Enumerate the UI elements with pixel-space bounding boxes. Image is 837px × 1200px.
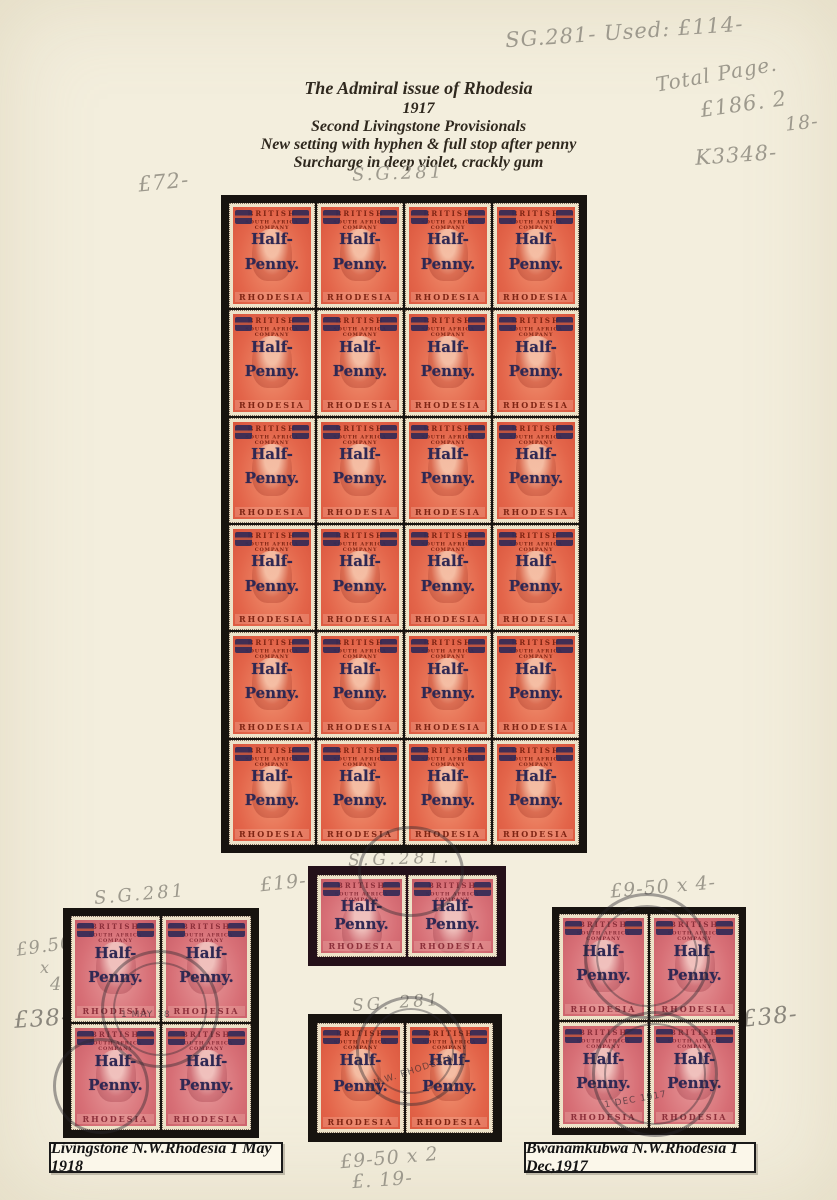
annotation-left-qty: 4 [50, 974, 62, 995]
overprint-penny: Penny. [233, 255, 311, 273]
stamp: BRITISHSOUTH AFRICA COMPANYRHODESIAHalf-… [408, 875, 497, 957]
overprint-half: Half- [497, 445, 575, 463]
value-tablet-obliterated-icon [716, 1029, 733, 1043]
overprint-half: Half- [410, 1051, 489, 1069]
overprint-half: Half- [563, 1050, 644, 1068]
overprint-half: Half- [409, 338, 487, 356]
stamp: BRITISHSOUTH AFRICA COMPANYRHODESIAHalf-… [493, 740, 579, 845]
stamp-design: BRITISHSOUTH AFRICA COMPANYRHODESIAHalf-… [409, 636, 487, 733]
stamp: BRITISHSOUTH AFRICA COMPANYRHODESIAHalf-… [493, 310, 579, 415]
caption-right: Bwanamkubwa N.W.Rhodesia 1 Dec,1917 [524, 1142, 756, 1173]
value-tablet-obliterated-icon [235, 532, 252, 546]
stamp: BRITISHSOUTH AFRICA COMPANYRHODESIAHalf-… [493, 632, 579, 737]
stamp-country-band: RHODESIA [235, 292, 309, 302]
value-tablet-obliterated-icon [556, 747, 573, 761]
stamp-design: BRITISHSOUTH AFRICA COMPANYRHODESIAHalf-… [321, 636, 399, 733]
stamp-block-left-used-4: BRITISHSOUTH AFRICA COMPANYRHODESIAHalf-… [63, 908, 259, 1138]
overprint-penny: Penny. [233, 684, 311, 702]
overprint-half: Half- [409, 230, 487, 248]
overprint-half: Half- [75, 1052, 156, 1070]
stamp-design: BRITISHSOUTH AFRICA COMPANYRHODESIAHalf-… [409, 314, 487, 411]
overprint-half: Half- [233, 338, 311, 356]
stamp-country-band: RHODESIA [499, 722, 573, 732]
stamp-country-band: RHODESIA [499, 507, 573, 517]
overprint-half: Half- [321, 660, 399, 678]
overprint-half: Half- [321, 1051, 400, 1069]
overprint-half: Half- [412, 897, 493, 915]
annotation-left-block-sg: S.G.281 [93, 880, 187, 909]
stamp-country-band: RHODESIA [565, 1004, 642, 1014]
annotation-sg-used-price: SG.281- Used: £114- [504, 12, 744, 53]
annotation-mid-bottom-sg: SG. 281 [351, 990, 441, 1016]
value-tablet-obliterated-icon [235, 747, 252, 761]
stamp-grid-main: BRITISHSOUTH AFRICA COMPANYRHODESIAHalf-… [228, 202, 580, 846]
stamp-design: BRITISHSOUTH AFRICA COMPANYRHODESIAHalf-… [654, 1026, 735, 1124]
stamp-grid-right: BRITISHSOUTH AFRICA COMPANYRHODESIAHalf-… [558, 913, 740, 1129]
stamp-design: BRITISHSOUTH AFRICA COMPANYRHODESIAHalf-… [321, 314, 399, 411]
stamp-design: BRITISHSOUTH AFRICA COMPANYRHODESIAHalf-… [321, 1027, 400, 1129]
stamp-design: BRITISHSOUTH AFRICA COMPANYRHODESIAHalf-… [409, 744, 487, 841]
overprint-penny: Penny. [410, 1077, 489, 1095]
overprint-half: Half- [497, 338, 575, 356]
overprint-half: Half- [233, 552, 311, 570]
overprint-half: Half- [166, 1052, 247, 1070]
value-tablet-obliterated-icon [168, 1031, 185, 1045]
value-tablet-obliterated-icon [323, 1030, 340, 1044]
overprint-half: Half- [233, 230, 311, 248]
stamp-design: BRITISHSOUTH AFRICA COMPANYRHODESIAHalf-… [233, 314, 311, 411]
overprint-half: Half- [321, 445, 399, 463]
stamp-country-band: RHODESIA [323, 829, 397, 839]
stamp: BRITISHSOUTH AFRICA COMPANYRHODESIAHalf-… [650, 1022, 739, 1128]
overprint-half: Half- [233, 767, 311, 785]
overprint-half: Half- [321, 767, 399, 785]
stamp-design: BRITISHSOUTH AFRICA COMPANYRHODESIAHalf-… [233, 422, 311, 519]
stamp-design: BRITISHSOUTH AFRICA COMPANYRHODESIAHalf-… [166, 1028, 247, 1126]
overprint-penny: Penny. [321, 684, 399, 702]
stamp: BRITISHSOUTH AFRICA COMPANYRHODESIAHalf-… [317, 525, 403, 630]
stamp: BRITISHSOUTH AFRICA COMPANYRHODESIAHalf-… [317, 418, 403, 523]
overprint-half: Half- [321, 230, 399, 248]
stamp-design: BRITISHSOUTH AFRICA COMPANYRHODESIAHalf-… [563, 1026, 644, 1124]
value-tablet-obliterated-icon [499, 317, 516, 331]
stamp: BRITISHSOUTH AFRICA COMPANYRHODESIAHalf-… [71, 1024, 160, 1130]
stamp: BRITISHSOUTH AFRICA COMPANYRHODESIAHalf-… [317, 1023, 404, 1133]
annotation-right-calc: £9-50 x 4- [609, 871, 717, 902]
stamp-design: BRITISHSOUTH AFRICA COMPANYRHODESIAHalf-… [409, 207, 487, 304]
overprint-penny: Penny. [321, 255, 399, 273]
value-tablet-obliterated-icon [411, 532, 428, 546]
overprint-half: Half- [321, 338, 399, 356]
overprint-penny: Penny. [654, 966, 735, 984]
overprint-half: Half- [497, 230, 575, 248]
value-tablet-obliterated-icon [411, 747, 428, 761]
value-tablet-obliterated-icon [380, 425, 397, 439]
stamp-country-band: RHODESIA [499, 614, 573, 624]
stamp-country-band: RHODESIA [323, 507, 397, 517]
caption-right-text: Bwanamkubwa N.W.Rhodesia 1 Dec,1917 [526, 1140, 754, 1176]
overprint-penny: Penny. [497, 362, 575, 380]
stamp-country-band: RHODESIA [235, 400, 309, 410]
value-tablet-obliterated-icon [499, 210, 516, 224]
value-tablet-obliterated-icon [381, 1030, 398, 1044]
stamp: BRITISHSOUTH AFRICA COMPANYRHODESIAHalf-… [317, 875, 406, 957]
stamp: BRITISHSOUTH AFRICA COMPANYRHODESIAHalf-… [229, 740, 315, 845]
annotation-main-block-sg: S.G.281 [352, 161, 445, 185]
stamp-country-band: RHODESIA [411, 614, 485, 624]
stamp-country-band: RHODESIA [414, 941, 491, 951]
stamp-country-band: RHODESIA [411, 400, 485, 410]
annotation-mid-bottom-total: £. 19- [351, 1167, 413, 1193]
stamp: BRITISHSOUTH AFRICA COMPANYRHODESIAHalf-… [493, 203, 579, 308]
stamp: BRITISHSOUTH AFRICA COMPANYRHODESIAHalf-… [405, 418, 491, 523]
stamp-country-band: RHODESIA [77, 1114, 154, 1124]
value-tablet-obliterated-icon [716, 921, 733, 935]
annotation-main-block-price: £72- [137, 167, 190, 196]
overprint-penny: Penny. [233, 791, 311, 809]
value-tablet-obliterated-icon [323, 639, 340, 653]
value-tablet-obliterated-icon [499, 747, 516, 761]
overprint-penny: Penny. [497, 469, 575, 487]
stamp-country-band: RHODESIA [235, 722, 309, 732]
stamp-design: BRITISHSOUTH AFRICA COMPANYRHODESIAHalf-… [233, 529, 311, 626]
overprint-penny: Penny. [321, 915, 402, 933]
value-tablet-obliterated-icon [228, 923, 245, 937]
stamp-country-band: RHODESIA [168, 1006, 245, 1016]
overprint-half: Half- [321, 897, 402, 915]
overprint-penny: Penny. [409, 791, 487, 809]
value-tablet-obliterated-icon [292, 639, 309, 653]
stamp-design: BRITISHSOUTH AFRICA COMPANYRHODESIAHalf-… [321, 879, 402, 953]
value-tablet-obliterated-icon [383, 882, 400, 896]
value-tablet-obliterated-icon [323, 210, 340, 224]
stamp-design: BRITISHSOUTH AFRICA COMPANYRHODESIAHalf-… [497, 636, 575, 733]
stamp-country-band: RHODESIA [499, 829, 573, 839]
value-tablet-obliterated-icon [411, 425, 428, 439]
stamp-country-band: RHODESIA [565, 1112, 642, 1122]
stamp-block-mint-24: BRITISHSOUTH AFRICA COMPANYRHODESIAHalf-… [221, 195, 587, 853]
stamp: BRITISHSOUTH AFRICA COMPANYRHODESIAHalf-… [405, 740, 491, 845]
value-tablet-obliterated-icon [292, 425, 309, 439]
stamp: BRITISHSOUTH AFRICA COMPANYRHODESIAHalf-… [229, 418, 315, 523]
stamp: BRITISHSOUTH AFRICA COMPANYRHODESIAHalf-… [162, 1024, 251, 1130]
stamp-country-band: RHODESIA [235, 829, 309, 839]
stamp-country-band: RHODESIA [323, 292, 397, 302]
overprint-half: Half- [654, 942, 735, 960]
value-tablet-obliterated-icon [468, 639, 485, 653]
stamp: BRITISHSOUTH AFRICA COMPANYRHODESIAHalf-… [71, 916, 160, 1022]
value-tablet-obliterated-icon [137, 1031, 154, 1045]
value-tablet-obliterated-icon [656, 921, 673, 935]
stamp-design: BRITISHSOUTH AFRICA COMPANYRHODESIAHalf-… [497, 314, 575, 411]
value-tablet-obliterated-icon [380, 639, 397, 653]
overprint-penny: Penny. [497, 684, 575, 702]
stamp-design: BRITISHSOUTH AFRICA COMPANYRHODESIAHalf-… [321, 744, 399, 841]
value-tablet-obliterated-icon [625, 921, 642, 935]
stamp-design: BRITISHSOUTH AFRICA COMPANYRHODESIAHalf-… [75, 920, 156, 1018]
stamp-design: BRITISHSOUTH AFRICA COMPANYRHODESIAHalf-… [75, 1028, 156, 1126]
value-tablet-obliterated-icon [556, 425, 573, 439]
stamp-country-band: RHODESIA [499, 292, 573, 302]
stamp-design: BRITISHSOUTH AFRICA COMPANYRHODESIAHalf-… [233, 744, 311, 841]
value-tablet-obliterated-icon [499, 425, 516, 439]
stamp-country-band: RHODESIA [323, 722, 397, 732]
value-tablet-obliterated-icon [468, 747, 485, 761]
stamp: BRITISHSOUTH AFRICA COMPANYRHODESIAHalf-… [650, 914, 739, 1020]
overprint-half: Half- [321, 552, 399, 570]
stamp-design: BRITISHSOUTH AFRICA COMPANYRHODESIAHalf-… [166, 920, 247, 1018]
overprint-penny: Penny. [409, 469, 487, 487]
stamp-country-band: RHODESIA [656, 1004, 733, 1014]
overprint-penny: Penny. [321, 469, 399, 487]
stamp-country-band: RHODESIA [411, 292, 485, 302]
stamp-design: BRITISHSOUTH AFRICA COMPANYRHODESIAHalf-… [410, 1027, 489, 1129]
overprint-half: Half- [409, 767, 487, 785]
value-tablet-obliterated-icon [412, 1030, 429, 1044]
overprint-penny: Penny. [75, 968, 156, 986]
overprint-penny: Penny. [409, 684, 487, 702]
value-tablet-obliterated-icon [556, 639, 573, 653]
stamp: BRITISHSOUTH AFRICA COMPANYRHODESIAHalf-… [405, 632, 491, 737]
stamp: BRITISHSOUTH AFRICA COMPANYRHODESIAHalf-… [405, 203, 491, 308]
value-tablet-obliterated-icon [380, 747, 397, 761]
overprint-penny: Penny. [75, 1076, 156, 1094]
stamp: BRITISHSOUTH AFRICA COMPANYRHODESIAHalf-… [406, 1023, 493, 1133]
stamp: BRITISHSOUTH AFRICA COMPANYRHODESIAHalf-… [405, 525, 491, 630]
stamp: BRITISHSOUTH AFRICA COMPANYRHODESIAHalf-… [229, 525, 315, 630]
annotation-left-times: x [40, 958, 50, 977]
value-tablet-obliterated-icon [565, 921, 582, 935]
overprint-penny: Penny. [497, 577, 575, 595]
stamp-country-band: RHODESIA [656, 1112, 733, 1122]
overprint-penny: Penny. [321, 1077, 400, 1095]
overprint-half: Half- [497, 767, 575, 785]
value-tablet-obliterated-icon [556, 532, 573, 546]
value-tablet-obliterated-icon [380, 317, 397, 331]
overprint-half: Half- [409, 660, 487, 678]
value-tablet-obliterated-icon [411, 639, 428, 653]
value-tablet-obliterated-icon [556, 210, 573, 224]
value-tablet-obliterated-icon [468, 210, 485, 224]
stamp-design: BRITISHSOUTH AFRICA COMPANYRHODESIAHalf-… [497, 529, 575, 626]
stamp-grid-left: BRITISHSOUTH AFRICA COMPANYRHODESIAHalf-… [70, 915, 252, 1131]
stamp-country-band: RHODESIA [235, 614, 309, 624]
value-tablet-obliterated-icon [292, 747, 309, 761]
stamp-design: BRITISHSOUTH AFRICA COMPANYRHODESIAHalf-… [409, 422, 487, 519]
stamp-design: BRITISHSOUTH AFRICA COMPANYRHODESIAHalf-… [409, 529, 487, 626]
value-tablet-obliterated-icon [292, 532, 309, 546]
stamp-design: BRITISHSOUTH AFRICA COMPANYRHODESIAHalf-… [497, 422, 575, 519]
value-tablet-obliterated-icon [380, 532, 397, 546]
overprint-penny: Penny. [409, 362, 487, 380]
stamp-country-band: RHODESIA [235, 507, 309, 517]
value-tablet-obliterated-icon [323, 425, 340, 439]
album-page: The Admiral issue of Rhodesia 1917 Secon… [0, 0, 837, 1200]
caption-left: Livingstone N.W.Rhodesia 1 May 1918 [49, 1142, 283, 1173]
value-tablet-obliterated-icon [77, 923, 94, 937]
value-tablet-obliterated-icon [235, 425, 252, 439]
value-tablet-obliterated-icon [565, 1029, 582, 1043]
overprint-penny: Penny. [412, 915, 493, 933]
value-tablet-obliterated-icon [470, 1030, 487, 1044]
stamp-block-mid-top-pair: BRITISHSOUTH AFRICA COMPANYRHODESIAHalf-… [308, 866, 506, 966]
overprint-penny: Penny. [497, 255, 575, 273]
value-tablet-obliterated-icon [235, 210, 252, 224]
overprint-penny: Penny. [321, 791, 399, 809]
overprint-penny: Penny. [409, 255, 487, 273]
stamp-design: BRITISHSOUTH AFRICA COMPANYRHODESIAHalf-… [321, 529, 399, 626]
value-tablet-obliterated-icon [499, 639, 516, 653]
stamp: BRITISHSOUTH AFRICA COMPANYRHODESIAHalf-… [493, 418, 579, 523]
value-tablet-obliterated-icon [414, 882, 431, 896]
stamp-country-band: RHODESIA [323, 941, 400, 951]
stamp-country-band: RHODESIA [412, 1117, 487, 1127]
annotation-right-total: £38- [741, 1001, 799, 1033]
annotation-left-total: £38- [13, 1004, 70, 1034]
value-tablet-obliterated-icon [656, 1029, 673, 1043]
overprint-penny: Penny. [233, 469, 311, 487]
stamp-grid-mid-bottom: BRITISHSOUTH AFRICA COMPANYRHODESIAHalf-… [316, 1022, 494, 1134]
stamp-country-band: RHODESIA [323, 400, 397, 410]
value-tablet-obliterated-icon [468, 425, 485, 439]
stamp: BRITISHSOUTH AFRICA COMPANYRHODESIAHalf-… [493, 525, 579, 630]
overprint-penny: Penny. [166, 968, 247, 986]
stamp-design: BRITISHSOUTH AFRICA COMPANYRHODESIAHalf-… [321, 207, 399, 304]
overprint-half: Half- [75, 944, 156, 962]
value-tablet-obliterated-icon [499, 532, 516, 546]
stamp: BRITISHSOUTH AFRICA COMPANYRHODESIAHalf-… [559, 1022, 648, 1128]
value-tablet-obliterated-icon [168, 923, 185, 937]
overprint-half: Half- [409, 445, 487, 463]
stamp-country-band: RHODESIA [323, 614, 397, 624]
value-tablet-obliterated-icon [323, 882, 340, 896]
annotation-mid-top-price: £19- [259, 870, 308, 897]
value-tablet-obliterated-icon [411, 210, 428, 224]
stamp: BRITISHSOUTH AFRICA COMPANYRHODESIAHalf-… [317, 632, 403, 737]
annotation-total-page-carry: 18- [784, 110, 820, 135]
value-tablet-obliterated-icon [380, 210, 397, 224]
value-tablet-obliterated-icon [468, 532, 485, 546]
value-tablet-obliterated-icon [323, 747, 340, 761]
stamp: BRITISHSOUTH AFRICA COMPANYRHODESIAHalf-… [405, 310, 491, 415]
overprint-half: Half- [497, 660, 575, 678]
overprint-penny: Penny. [166, 1076, 247, 1094]
overprint-penny: Penny. [233, 362, 311, 380]
value-tablet-obliterated-icon [474, 882, 491, 896]
stamp-design: BRITISHSOUTH AFRICA COMPANYRHODESIAHalf-… [233, 636, 311, 733]
value-tablet-obliterated-icon [625, 1029, 642, 1043]
stamp: BRITISHSOUTH AFRICA COMPANYRHODESIAHalf-… [317, 310, 403, 415]
stamp-country-band: RHODESIA [499, 400, 573, 410]
stamp: BRITISHSOUTH AFRICA COMPANYRHODESIAHalf-… [559, 914, 648, 1020]
value-tablet-obliterated-icon [323, 317, 340, 331]
stamp-block-right-used-4: BRITISHSOUTH AFRICA COMPANYRHODESIAHalf-… [552, 907, 746, 1135]
value-tablet-obliterated-icon [292, 210, 309, 224]
value-tablet-obliterated-icon [137, 923, 154, 937]
stamp-country-band: RHODESIA [411, 722, 485, 732]
value-tablet-obliterated-icon [235, 639, 252, 653]
stamp-design: BRITISHSOUTH AFRICA COMPANYRHODESIAHalf-… [563, 918, 644, 1016]
stamp-design: BRITISHSOUTH AFRICA COMPANYRHODESIAHalf-… [497, 207, 575, 304]
stamp-design: BRITISHSOUTH AFRICA COMPANYRHODESIAHalf-… [654, 918, 735, 1016]
stamp-country-band: RHODESIA [411, 829, 485, 839]
overprint-penny: Penny. [563, 1074, 644, 1092]
stamp-country-band: RHODESIA [77, 1006, 154, 1016]
value-tablet-obliterated-icon [77, 1031, 94, 1045]
overprint-half: Half- [563, 942, 644, 960]
stamp: BRITISHSOUTH AFRICA COMPANYRHODESIAHalf-… [229, 310, 315, 415]
overprint-half: Half- [233, 445, 311, 463]
overprint-penny: Penny. [563, 966, 644, 984]
value-tablet-obliterated-icon [292, 317, 309, 331]
stamp-design: BRITISHSOUTH AFRICA COMPANYRHODESIAHalf-… [233, 207, 311, 304]
overprint-half: Half- [497, 552, 575, 570]
stamp-block-mid-bottom-pair: BRITISHSOUTH AFRICA COMPANYRHODESIAHalf-… [308, 1014, 502, 1142]
overprint-penny: Penny. [497, 791, 575, 809]
value-tablet-obliterated-icon [323, 532, 340, 546]
overprint-penny: Penny. [654, 1074, 735, 1092]
overprint-half: Half- [654, 1050, 735, 1068]
stamp-design: BRITISHSOUTH AFRICA COMPANYRHODESIAHalf-… [497, 744, 575, 841]
stamp: BRITISHSOUTH AFRICA COMPANYRHODESIAHalf-… [229, 632, 315, 737]
stamp-design: BRITISHSOUTH AFRICA COMPANYRHODESIAHalf-… [412, 879, 493, 953]
stamp-country-band: RHODESIA [411, 507, 485, 517]
overprint-half: Half- [233, 660, 311, 678]
stamp-grid-mid-top: BRITISHSOUTH AFRICA COMPANYRHODESIAHalf-… [316, 874, 498, 958]
value-tablet-obliterated-icon [235, 317, 252, 331]
stamp: BRITISHSOUTH AFRICA COMPANYRHODESIAHalf-… [317, 203, 403, 308]
value-tablet-obliterated-icon [228, 1031, 245, 1045]
overprint-penny: Penny. [321, 577, 399, 595]
caption-left-text: Livingstone N.W.Rhodesia 1 May 1918 [51, 1140, 281, 1176]
overprint-penny: Penny. [233, 577, 311, 595]
value-tablet-obliterated-icon [468, 317, 485, 331]
value-tablet-obliterated-icon [556, 317, 573, 331]
overprint-penny: Penny. [321, 362, 399, 380]
overprint-half: Half- [409, 552, 487, 570]
stamp-country-band: RHODESIA [168, 1114, 245, 1124]
stamp-design: BRITISHSOUTH AFRICA COMPANYRHODESIAHalf-… [321, 422, 399, 519]
value-tablet-obliterated-icon [411, 317, 428, 331]
stamp-country-band: RHODESIA [323, 1117, 398, 1127]
stamp: BRITISHSOUTH AFRICA COMPANYRHODESIAHalf-… [229, 203, 315, 308]
stamp: BRITISHSOUTH AFRICA COMPANYRHODESIAHalf-… [162, 916, 251, 1022]
stamp: BRITISHSOUTH AFRICA COMPANYRHODESIAHalf-… [317, 740, 403, 845]
overprint-penny: Penny. [409, 577, 487, 595]
page-subtitle: Second Livingstone Provisionals [0, 118, 837, 136]
overprint-half: Half- [166, 944, 247, 962]
